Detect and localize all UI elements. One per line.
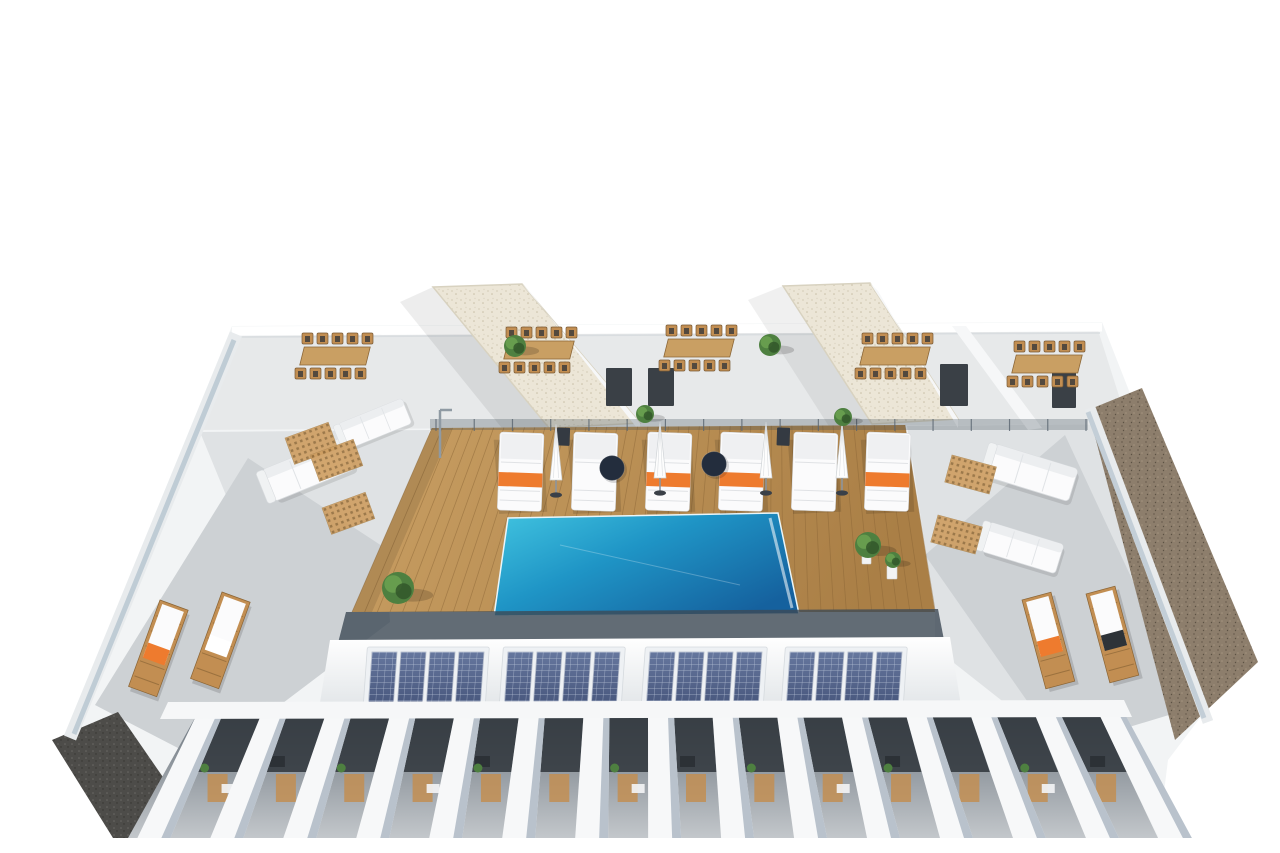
lounger-backrest <box>649 434 691 460</box>
terrace-plant <box>200 764 209 773</box>
terrace-wood-floor <box>481 774 501 802</box>
terrace-chair <box>1042 784 1055 793</box>
terrace-recess <box>539 716 584 772</box>
swimming-pool <box>494 513 799 616</box>
terrace-sofa <box>1090 756 1105 767</box>
terrace-recess <box>607 716 648 772</box>
terrace-recess <box>739 716 785 772</box>
pool-lounger <box>858 432 917 516</box>
rooftop-render-image <box>0 0 1280 853</box>
umbrella-base <box>760 490 772 495</box>
umbrella-base <box>836 490 848 495</box>
terrace-plant <box>884 764 893 773</box>
lounger-backrest <box>795 434 837 460</box>
orange-towel <box>498 472 542 488</box>
pool-area-glass-railing <box>430 419 1088 430</box>
umbrella-base <box>654 490 666 495</box>
bottom-margin <box>0 838 1280 853</box>
side-table <box>777 427 791 445</box>
terrace-wood-floor <box>276 774 296 802</box>
terrace-wood-floor <box>754 774 774 802</box>
umbrella-base <box>550 492 562 497</box>
rooftop-scene <box>0 0 1280 853</box>
lounger-backrest <box>722 434 764 460</box>
lounger-backrest <box>868 434 910 460</box>
terrace-wood-floor <box>959 774 979 802</box>
terrace-plant <box>473 764 482 773</box>
terrace-plant <box>747 764 756 773</box>
side-table <box>557 427 571 445</box>
terrace-wood-floor <box>344 774 364 802</box>
orange-towel <box>646 472 690 488</box>
terrace-wood-floor <box>549 774 569 802</box>
terrace-plant <box>1020 764 1029 773</box>
terrace-wood-floor <box>686 774 706 802</box>
pool-lounger <box>639 432 698 516</box>
terrace-chair <box>427 784 440 793</box>
terrace-sofa <box>680 756 695 767</box>
terrace-wood-floor <box>891 774 911 802</box>
terrace-chair <box>632 784 645 793</box>
terrace-sofa <box>270 756 285 767</box>
lounger-backrest <box>501 434 543 460</box>
terrace-plant <box>337 764 346 773</box>
terrace-chair <box>837 784 850 793</box>
terrace-plant <box>610 764 619 773</box>
pergola-header-beam <box>160 700 1132 719</box>
pool-lounger <box>491 432 550 516</box>
orange-towel <box>865 472 909 488</box>
